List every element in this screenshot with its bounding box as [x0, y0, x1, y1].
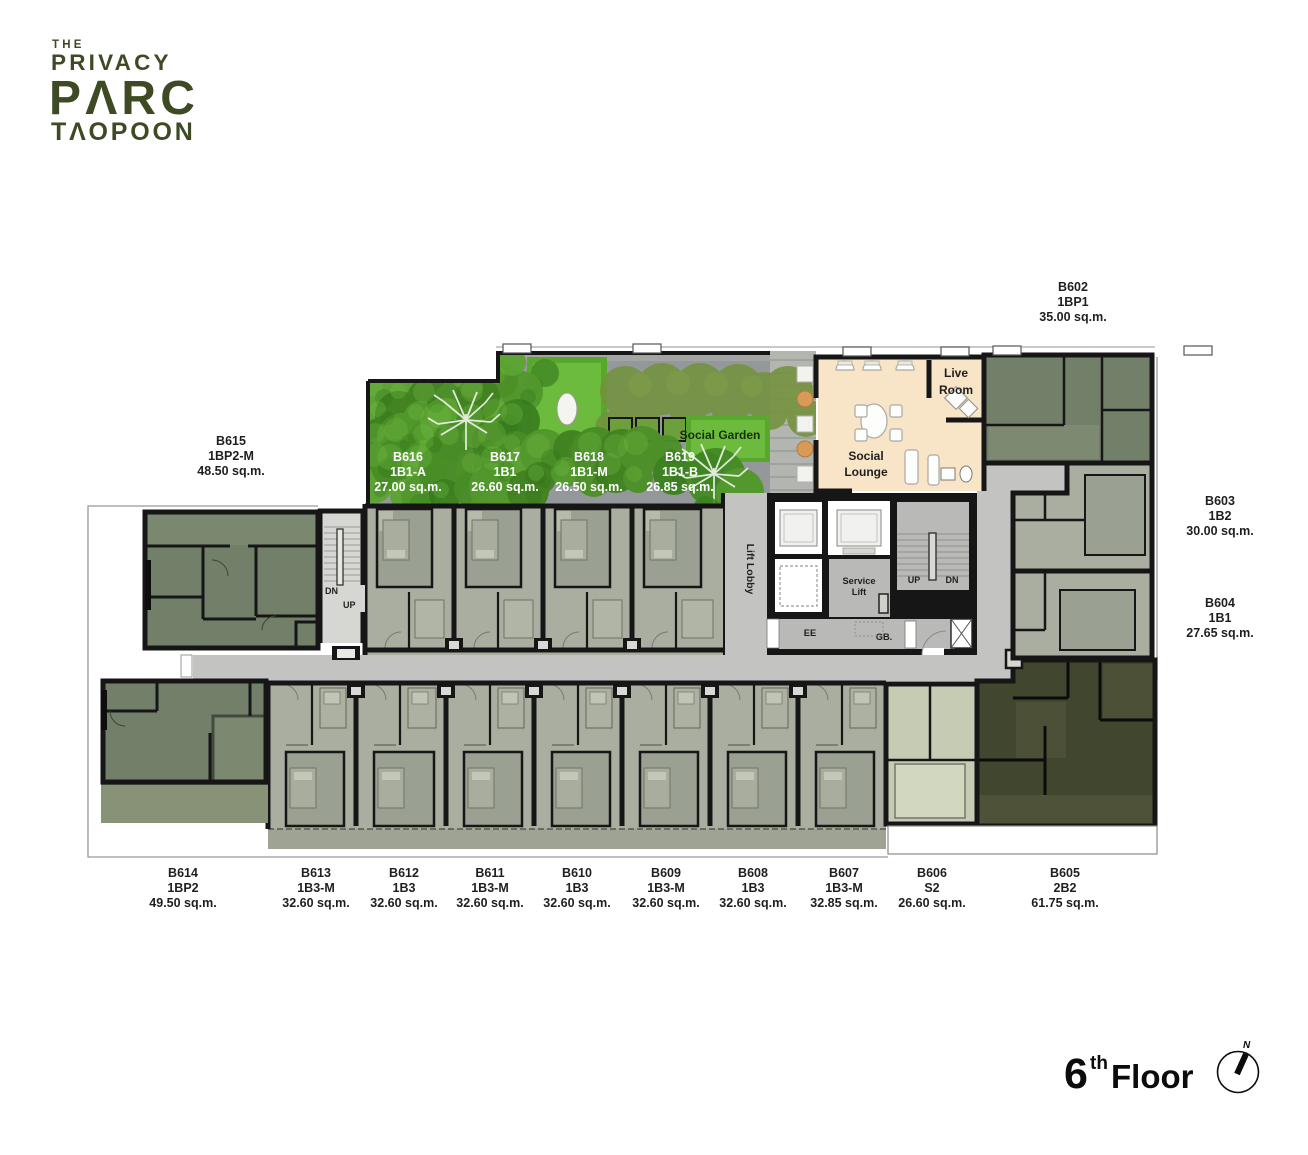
- svg-text:B608: B608: [738, 866, 768, 880]
- svg-text:1B3-M: 1B3-M: [647, 881, 685, 895]
- svg-text:1B3: 1B3: [742, 881, 765, 895]
- svg-text:UP: UP: [908, 575, 921, 585]
- svg-text:Social: Social: [848, 449, 883, 463]
- svg-text:EE: EE: [804, 628, 816, 638]
- svg-text:30.00 sq.m.: 30.00 sq.m.: [1186, 524, 1253, 538]
- svg-text:27.65 sq.m.: 27.65 sq.m.: [1186, 626, 1253, 640]
- svg-text:35.00 sq.m.: 35.00 sq.m.: [1039, 310, 1106, 324]
- svg-text:48.50 sq.m.: 48.50 sq.m.: [197, 464, 264, 478]
- svg-text:B602: B602: [1058, 280, 1088, 294]
- svg-text:N: N: [1243, 1040, 1251, 1051]
- svg-text:1B1-B: 1B1-B: [662, 465, 698, 479]
- svg-text:26.60 sq.m.: 26.60 sq.m.: [471, 480, 538, 494]
- svg-text:GB.: GB.: [876, 632, 893, 642]
- svg-text:1B3: 1B3: [566, 881, 589, 895]
- svg-text:Lift Lobby: Lift Lobby: [744, 544, 756, 595]
- svg-text:1B1-M: 1B1-M: [570, 465, 608, 479]
- svg-text:Room: Room: [939, 383, 973, 397]
- svg-text:Lift: Lift: [852, 587, 866, 597]
- svg-text:B606: B606: [917, 866, 947, 880]
- svg-text:B616: B616: [393, 450, 423, 464]
- svg-text:2B2: 2B2: [1054, 881, 1077, 895]
- svg-text:Service: Service: [842, 576, 875, 586]
- svg-text:B617: B617: [490, 450, 520, 464]
- svg-text:B613: B613: [301, 866, 331, 880]
- svg-text:1B3: 1B3: [393, 881, 416, 895]
- svg-text:B615: B615: [216, 434, 246, 448]
- svg-text:B603: B603: [1205, 494, 1235, 508]
- svg-text:Lounge: Lounge: [844, 465, 888, 479]
- svg-text:32.60 sq.m.: 32.60 sq.m.: [719, 896, 786, 910]
- svg-text:1BP2: 1BP2: [167, 881, 198, 895]
- svg-text:32.60 sq.m.: 32.60 sq.m.: [632, 896, 699, 910]
- svg-text:Floor: Floor: [1111, 1058, 1194, 1095]
- svg-text:61.75 sq.m.: 61.75 sq.m.: [1031, 896, 1098, 910]
- svg-text:B612: B612: [389, 866, 419, 880]
- svg-text:49.50 sq.m.: 49.50 sq.m.: [149, 896, 216, 910]
- svg-text:1BP1: 1BP1: [1057, 295, 1088, 309]
- svg-text:32.60 sq.m.: 32.60 sq.m.: [456, 896, 523, 910]
- svg-text:1B3-M: 1B3-M: [825, 881, 863, 895]
- svg-text:6: 6: [1064, 1050, 1088, 1098]
- svg-text:1B1: 1B1: [494, 465, 517, 479]
- svg-text:1BP2-M: 1BP2-M: [208, 449, 254, 463]
- svg-text:th: th: [1090, 1053, 1108, 1074]
- svg-text:B618: B618: [574, 450, 604, 464]
- svg-text:UP: UP: [343, 600, 356, 610]
- svg-text:Live: Live: [944, 366, 968, 380]
- svg-text:B605: B605: [1050, 866, 1080, 880]
- svg-text:1B3-M: 1B3-M: [471, 881, 509, 895]
- svg-text:B604: B604: [1205, 596, 1235, 610]
- svg-text:TΛOPOON: TΛOPOON: [51, 118, 196, 146]
- svg-text:32.60 sq.m.: 32.60 sq.m.: [370, 896, 437, 910]
- svg-text:32.60 sq.m.: 32.60 sq.m.: [282, 896, 349, 910]
- svg-text:1B3-M: 1B3-M: [297, 881, 335, 895]
- svg-text:B607: B607: [829, 866, 859, 880]
- svg-text:1B1: 1B1: [1209, 611, 1232, 625]
- svg-text:26.50 sq.m.: 26.50 sq.m.: [555, 480, 622, 494]
- svg-text:DN: DN: [325, 586, 338, 596]
- svg-text:B611: B611: [475, 866, 504, 880]
- svg-text:27.00 sq.m.: 27.00 sq.m.: [374, 480, 441, 494]
- svg-text:32.85 sq.m.: 32.85 sq.m.: [810, 896, 877, 910]
- svg-text:1B2: 1B2: [1209, 509, 1232, 523]
- svg-text:1B1-A: 1B1-A: [390, 465, 426, 479]
- svg-text:DN: DN: [946, 575, 959, 585]
- svg-text:32.60 sq.m.: 32.60 sq.m.: [543, 896, 610, 910]
- svg-text:S2: S2: [924, 881, 939, 895]
- svg-text:26.85 sq.m.: 26.85 sq.m.: [646, 480, 713, 494]
- svg-text:Social Garden: Social Garden: [680, 428, 761, 442]
- svg-text:B614: B614: [168, 866, 198, 880]
- svg-text:B610: B610: [562, 866, 592, 880]
- svg-text:26.60 sq.m.: 26.60 sq.m.: [898, 896, 965, 910]
- svg-text:B609: B609: [651, 866, 681, 880]
- svg-text:B619: B619: [665, 450, 695, 464]
